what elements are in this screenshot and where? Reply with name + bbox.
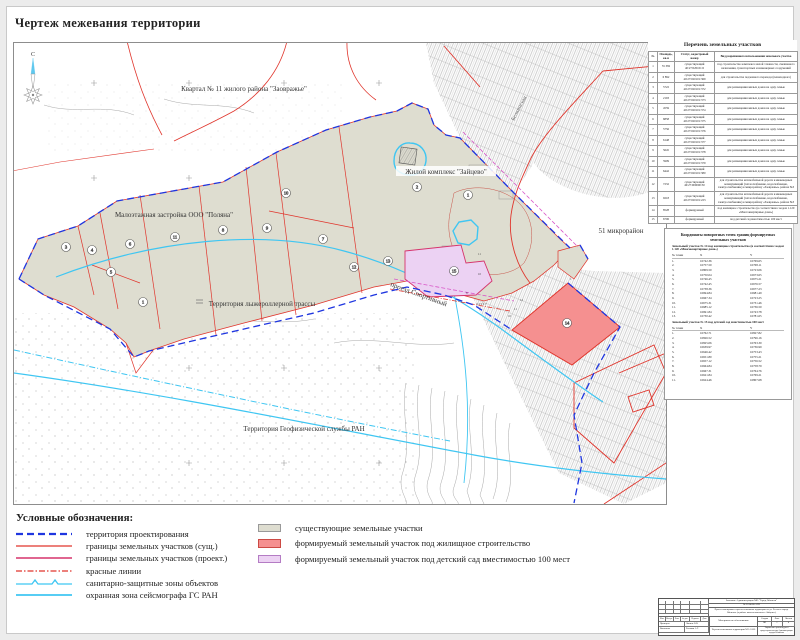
svg-text:13: 13 xyxy=(386,259,391,264)
cell-number: 7 xyxy=(649,125,658,136)
cell-area: 5909 xyxy=(658,156,675,167)
table-row: 10 5909 существующий40:27:020101:379 для… xyxy=(649,156,798,167)
cell-status: существующий40:27:020101:377 xyxy=(675,135,715,146)
cell-area: 9218 xyxy=(658,192,675,206)
cell-area: 5756 xyxy=(658,125,675,136)
svg-text:10: 10 xyxy=(478,272,482,276)
project-boundary-line-sample xyxy=(16,554,72,562)
cell-number: 9 xyxy=(649,146,658,157)
cell-status: существующий40:27:020101:379 xyxy=(675,156,715,167)
table-row: 11 6442 существующий40:27:020101:380 для… xyxy=(649,167,798,178)
cell-number: 10 xyxy=(649,156,658,167)
cell-number: 12 xyxy=(649,177,658,191)
table-row: 9 5645 существующий40:27:020101:378 для … xyxy=(649,146,798,157)
legend-item-seismograph-zone: охранная зона сейсмографа ГС РАН xyxy=(16,589,227,601)
legend-item-sanitary-zones: санитарно-защитные зоны объектов xyxy=(16,577,227,589)
north-arrow: С xyxy=(20,52,45,108)
cell-area: 6858 xyxy=(658,114,675,125)
cell-number: 14 xyxy=(649,206,658,217)
meadow-dots-texture xyxy=(14,313,416,504)
svg-text:3 4 5 6 7: 3 4 5 6 7 xyxy=(476,302,487,306)
cell-area: 4559 xyxy=(658,104,675,115)
legend-heading: Условные обозначения: xyxy=(16,512,227,524)
cell-usage: для размещения жилых домов на одну семью xyxy=(715,104,798,115)
cell-usage: для размещения жилых домов на одну семью xyxy=(715,93,798,104)
cell-usage: для размещения жилых домов на одну семью xyxy=(715,135,798,146)
table-row: 1 55 382 существующий40:27:020101:6 под … xyxy=(649,62,798,73)
cell-area: 6706 xyxy=(658,216,675,223)
plots-table-header-row: № Площадь, кв.м Статус, кадастровый номе… xyxy=(649,52,798,62)
label-lyzhe: Территория лыжероллерной трассы xyxy=(209,300,316,308)
legend-areas-panel: существующие земельные участки формируем… xyxy=(258,520,570,567)
cell-status: существующий40:27:020101:376 xyxy=(675,125,715,136)
plots-table-panel: Перечень земельных участков № Площадь, к… xyxy=(648,40,797,224)
col-usage: Вид разрешенного использования земельног… xyxy=(715,52,798,62)
cell-number: 5 xyxy=(649,104,658,115)
plot15-block-title: Земельный участок № 15 под детский сад в… xyxy=(672,321,784,325)
existing-boundary-line-sample xyxy=(16,542,72,550)
svg-text:12: 12 xyxy=(352,265,357,270)
title-block-stamp: Заказчик: Администрация МО "Город Обнинс… xyxy=(658,598,795,636)
cell-number: 4 xyxy=(649,93,658,104)
table-row: 4 2193 существующий40:27:020101:373 для … xyxy=(649,93,798,104)
housing-plot-swatch xyxy=(258,539,281,548)
table-row: 12 7232 существующий40:27:000000:30 для … xyxy=(649,177,798,191)
col-number: № xyxy=(649,52,658,62)
red-lines-sample xyxy=(16,567,72,575)
cell-status: существующий40:27:020101:369 xyxy=(675,72,715,83)
stamp-made-row: ВыполнилРыськов А.Г. xyxy=(659,627,709,633)
cell-usage: для размещения жилых домов на одну семью xyxy=(715,156,798,167)
svg-text:15: 15 xyxy=(452,269,457,274)
seismograph-station-square xyxy=(399,147,417,165)
page-title: Чертеж межевания территории xyxy=(15,16,201,31)
cell-area: 6442 xyxy=(658,167,675,178)
cell-status: существующий40:27:020101:374 xyxy=(675,104,715,115)
cell-area: 8528 xyxy=(658,206,675,217)
label-geofiz: Территория Геофизической службы РАН xyxy=(243,425,364,433)
table-row: 2 6 892 существующий40:27:020101:369 для… xyxy=(649,72,798,83)
label-kvartal11: Квартал № 11 жилого района "Заовражье" xyxy=(181,85,307,93)
table-row: 15 6706 формируемый под детский сад вмес… xyxy=(649,216,798,223)
stamp-materials: Материалы по обоснованию xyxy=(710,617,757,627)
label-51-mkr: 51 микрорайон xyxy=(599,227,644,235)
stamp-revision-grid xyxy=(659,599,709,616)
cell-usage: для строительства автомобильной дороги и… xyxy=(715,177,798,191)
legend-item-kindergarten-plot: формируемый земельный участок под детски… xyxy=(258,551,570,567)
map-canvas[interactable]: С 3 4 5 6 11 8 9 10 7 12 1 2 xyxy=(13,42,667,505)
cell-number: 11 xyxy=(649,167,658,178)
plots-table-title: Перечень земельных участков xyxy=(648,42,797,48)
cell-usage: под детский сад вместимостью 100 мест xyxy=(715,216,798,223)
svg-text:12: 12 xyxy=(520,298,524,302)
stamp-project-name: Проект планировки и проект межевания тер… xyxy=(709,608,794,616)
kindergarten-plot-swatch xyxy=(258,555,281,564)
cell-status: существующий40:27:020101:223 xyxy=(675,192,715,206)
cell-usage: для размещения жилых домов на одну семью xyxy=(715,167,798,178)
cell-status: существующий40:27:020101:375 xyxy=(675,114,715,125)
plot15-coords-rows: 1. 16762.71 16827.82 2. 16826.52 16796.1… xyxy=(672,331,784,382)
coords-row: 13. 16730.42 16781.65 xyxy=(672,314,784,319)
legend-item-housing-plot: формируемый земельный участок под жилищн… xyxy=(258,536,570,552)
stamp-organization: Управление архитектуры и градостроительс… xyxy=(758,627,795,635)
design-territory-line-sample xyxy=(16,530,72,538)
cell-number: 3 xyxy=(649,83,658,94)
cell-number: 13 xyxy=(649,192,658,206)
table-row: 6 6858 существующий40:27:020101:375 для … xyxy=(649,114,798,125)
legend-item-existing-plots: существующие земельные участки xyxy=(258,520,570,536)
cell-number: 6 xyxy=(649,114,658,125)
stamp-doc-title: Чертеж межевания территории М 1:1000 xyxy=(710,627,757,636)
plot14-coords-rows: 1. 16742.36 16769.65 2. 16757.50 16768.1… xyxy=(672,259,784,319)
cell-status: формируемый xyxy=(675,216,715,223)
legend-item-design-territory: территория проектирования xyxy=(16,528,227,540)
cell-number: 8 xyxy=(649,135,658,146)
svg-text:10: 10 xyxy=(508,314,512,318)
legend-item-existing-boundaries: границы земельных участков (сущ.) xyxy=(16,540,227,552)
cell-area: 55 382 xyxy=(658,62,675,73)
cell-area: 7232 xyxy=(658,177,675,191)
cell-usage: для размещения жилых домов на одну семью xyxy=(715,83,798,94)
cell-status: существующий40:27:020101:6 xyxy=(675,62,715,73)
plots-table-body: 1 55 382 существующий40:27:020101:6 под … xyxy=(649,62,798,223)
cell-status: существующий40:27:020101:372 xyxy=(675,83,715,94)
cell-area: 5645 xyxy=(658,146,675,157)
col-status: Статус, кадастровый номер xyxy=(675,52,715,62)
cell-area: 6 892 xyxy=(658,72,675,83)
coords-row: 11. 16624.46 16807.68 xyxy=(672,378,784,383)
cell-usage: для размещения жилых домов на одну семью xyxy=(715,125,798,136)
svg-text:С: С xyxy=(31,52,35,58)
cell-usage: для строительства автомобильной дороги и… xyxy=(715,192,798,206)
svg-text:11: 11 xyxy=(478,252,481,256)
cell-usage: для размещения жилых домов на одну семью xyxy=(715,114,798,125)
cell-usage: под жилищное строительство (в соответств… xyxy=(715,206,798,217)
svg-text:11: 11 xyxy=(173,235,178,240)
cell-number: 1 xyxy=(649,62,658,73)
plot14-block-title: Земельный участок № 14 под жилищное стро… xyxy=(672,245,784,252)
cell-area: 6148 xyxy=(658,135,675,146)
svg-text:11: 11 xyxy=(514,307,517,311)
seismograph-zone-line-sample xyxy=(16,591,72,599)
table-row: 7 5756 существующий40:27:020101:376 для … xyxy=(649,125,798,136)
cell-status: существующий40:27:000000:30 xyxy=(675,177,715,191)
coordinates-panel: Координаты поворотных точек границ форми… xyxy=(664,228,792,400)
table-row: 3 5722 существующий40:27:020101:372 для … xyxy=(649,83,798,94)
existing-plots-swatch xyxy=(258,524,281,533)
cell-status: существующий40:27:020101:373 xyxy=(675,93,715,104)
table-row: 13 9218 существующий40:27:020101:223 для… xyxy=(649,192,798,206)
cell-area: 2193 xyxy=(658,93,675,104)
table-row: 14 8528 формируемый под жилищное строите… xyxy=(649,206,798,217)
coordinates-title: Координаты поворотных точек границ форми… xyxy=(672,233,784,243)
cell-status: формируемый xyxy=(675,206,715,217)
cell-usage: для строительства подземного перехода (п… xyxy=(715,72,798,83)
drawing-sheet-app: Чертеж межевания территории xyxy=(0,0,800,640)
label-zaitsevo: Жилой комплекс "Зайцево" xyxy=(405,168,487,176)
cell-status: существующий40:27:020101:380 xyxy=(675,167,715,178)
table-row: 8 6148 существующий40:27:020101:377 для … xyxy=(649,135,798,146)
legend-item-project-boundaries: границы земельных участков (проект.) xyxy=(16,552,227,564)
sanitary-zone-line-sample xyxy=(16,578,72,588)
plots-table: № Площадь, кв.м Статус, кадастровый номе… xyxy=(648,51,798,224)
table-row: 5 4559 существующий40:27:020101:374 для … xyxy=(649,104,798,115)
cell-status: существующий40:27:020101:378 xyxy=(675,146,715,157)
cell-area: 5722 xyxy=(658,83,675,94)
svg-text:10: 10 xyxy=(284,191,289,196)
legend-lines-panel: Условные обозначения: территория проекти… xyxy=(16,512,227,601)
col-area: Площадь, кв.м xyxy=(658,52,675,62)
territory-map-svg: С 3 4 5 6 11 8 9 10 7 12 1 2 xyxy=(14,43,666,504)
label-polyana: Малоэтажная застройка ООО "Поляна" xyxy=(115,211,233,219)
cell-number: 15 xyxy=(649,216,658,223)
legend-item-red-lines: красные линии xyxy=(16,565,227,577)
svg-text:14: 14 xyxy=(565,321,570,326)
cell-usage: под строительство комплекса малой этажно… xyxy=(715,62,798,73)
cell-usage: для размещения жилых домов на одну семью xyxy=(715,146,798,157)
cell-number: 2 xyxy=(649,72,658,83)
